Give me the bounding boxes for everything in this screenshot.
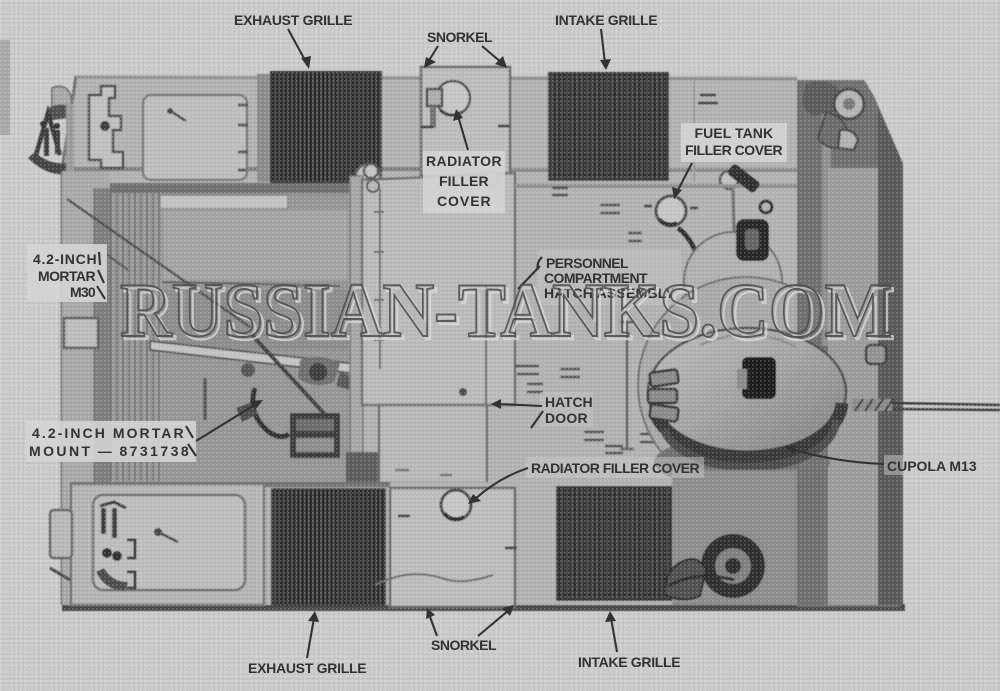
svg-text:COVER: COVER [437,193,491,209]
svg-text:MORTAR: MORTAR [38,268,96,284]
svg-text:INTAKE GRILLE: INTAKE GRILLE [578,654,681,670]
svg-text:CUPOLA M13: CUPOLA M13 [887,458,977,474]
svg-text:4.2-INCH MORTAR: 4.2-INCH MORTAR [32,425,184,441]
svg-text:RADIATOR FILLER COVER: RADIATOR FILLER COVER [531,460,700,476]
svg-text:SNORKEL: SNORKEL [431,637,497,653]
svg-text:M30: M30 [70,284,96,300]
svg-text:EXHAUST GRILLE: EXHAUST GRILLE [234,12,353,28]
svg-text:RUSSIAN-TANKS.COM: RUSSIAN-TANKS.COM [120,267,892,353]
svg-text:4.2-INCH: 4.2-INCH [33,251,97,267]
svg-text:RADIATOR: RADIATOR [426,153,502,169]
svg-text:FUEL TANK: FUEL TANK [695,125,774,141]
svg-text:EXHAUST GRILLE: EXHAUST GRILLE [248,660,367,676]
svg-text:DOOR: DOOR [545,410,588,426]
svg-text:FILLER: FILLER [439,173,489,189]
svg-text:SNORKEL: SNORKEL [427,29,493,45]
svg-text:MOUNT — 8731738: MOUNT — 8731738 [29,443,189,459]
svg-text:FILLER COVER: FILLER COVER [685,142,783,158]
svg-text:HATCH: HATCH [545,394,593,410]
svg-text:INTAKE GRILLE: INTAKE GRILLE [555,12,658,28]
